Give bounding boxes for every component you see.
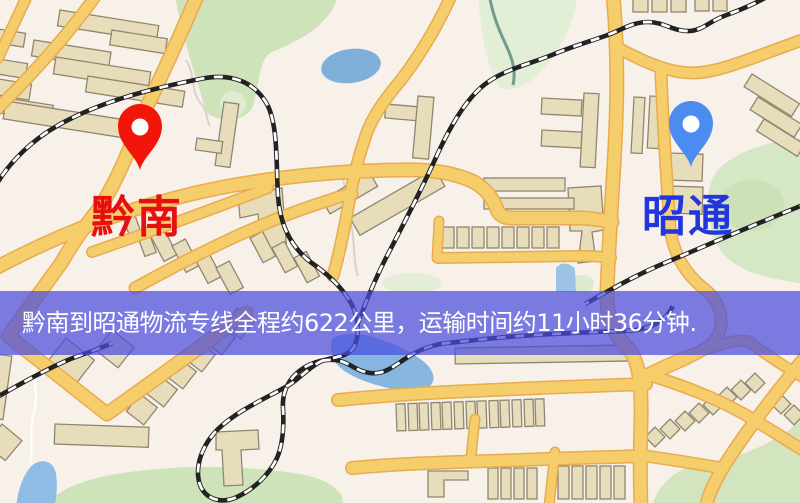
- origin-label: 黔南: [91, 181, 183, 245]
- water-sliver: [556, 264, 576, 292]
- info-banner: 黔南到昭通物流专线全程约622公里，运输时间约11小时36分钟.: [0, 291, 800, 355]
- map-canvas[interactable]: [0, 0, 800, 503]
- map-screenshot: 黔南 昭通 黔南到昭通物流专线全程约622公里，运输时间约11小时36分钟.: [0, 0, 800, 503]
- origin-pin-hole: [132, 119, 149, 136]
- destination-pin-hole: [683, 116, 700, 133]
- banner-text: 黔南到昭通物流专线全程约622公里，运输时间约11小时36分钟.: [22, 309, 697, 337]
- destination-label: 昭通: [642, 180, 734, 244]
